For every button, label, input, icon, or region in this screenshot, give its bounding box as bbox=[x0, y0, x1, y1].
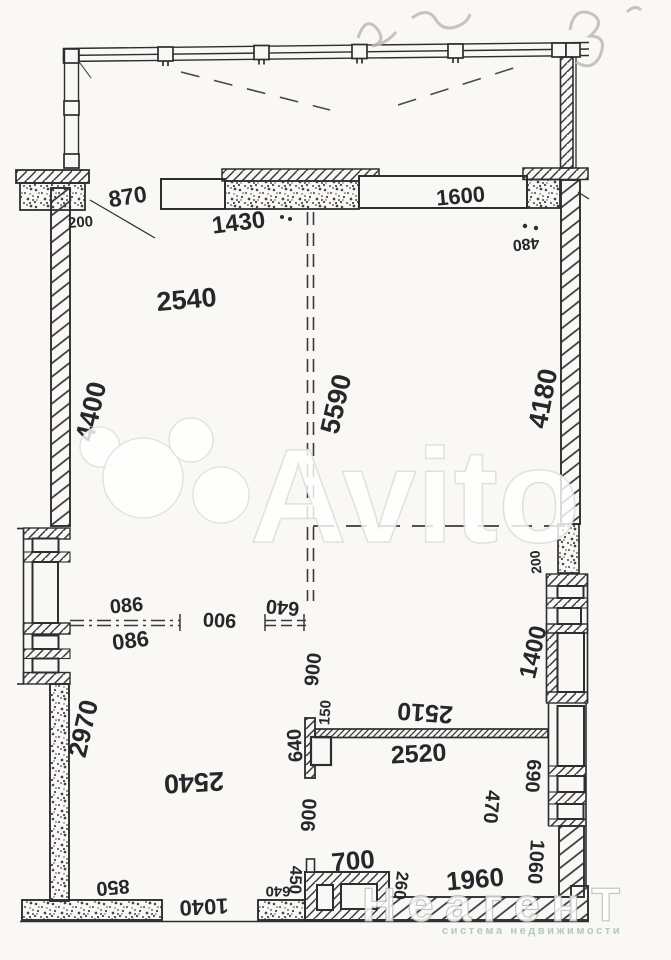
svg-text:900: 900 bbox=[297, 798, 321, 833]
svg-text:2510: 2510 bbox=[396, 697, 453, 729]
svg-text:150: 150 bbox=[316, 700, 335, 726]
svg-text:690: 690 bbox=[520, 759, 544, 794]
svg-text:900: 900 bbox=[301, 652, 326, 687]
svg-text:470: 470 bbox=[479, 789, 504, 824]
svg-text:900: 900 bbox=[202, 608, 236, 632]
svg-text:086: 086 bbox=[109, 594, 144, 619]
svg-text:200: 200 bbox=[68, 213, 94, 232]
svg-text:640: 640 bbox=[283, 728, 307, 763]
svg-text:система недвижимости: система недвижимости bbox=[442, 925, 622, 937]
svg-text:2540: 2540 bbox=[155, 282, 217, 317]
svg-text:700: 700 bbox=[330, 844, 376, 878]
svg-text:Avito: Avito bbox=[250, 422, 580, 571]
svg-text:2520: 2520 bbox=[390, 739, 447, 770]
svg-text:1600: 1600 bbox=[435, 181, 486, 210]
svg-text:НеагенТ: НеагенТ bbox=[362, 878, 632, 931]
svg-text:640: 640 bbox=[265, 883, 290, 900]
svg-text:850: 850 bbox=[95, 875, 130, 900]
svg-text:480: 480 bbox=[512, 234, 540, 254]
svg-text:086: 086 bbox=[111, 626, 150, 655]
svg-text:2540: 2540 bbox=[163, 766, 225, 799]
svg-text:640: 640 bbox=[265, 595, 300, 620]
svg-text:1040: 1040 bbox=[179, 893, 229, 921]
